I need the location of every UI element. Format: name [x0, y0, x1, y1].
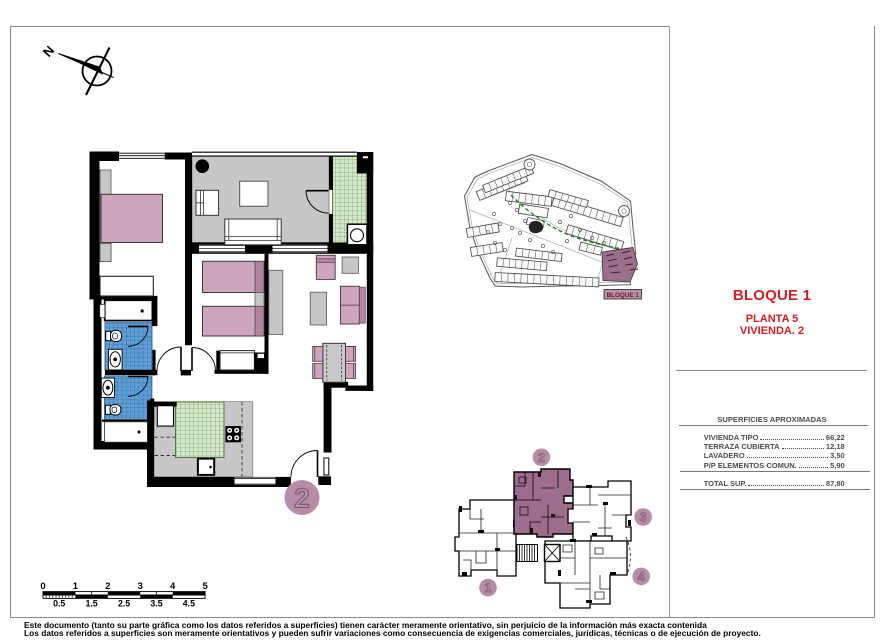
svg-text:BLOQUE 1: BLOQUE 1	[607, 292, 640, 299]
svg-text:1.5: 1.5	[85, 599, 97, 609]
svg-text:3: 3	[640, 510, 647, 525]
svg-text:0: 0	[40, 581, 45, 592]
svg-text:5: 5	[202, 581, 208, 592]
svg-text:0.5: 0.5	[53, 599, 65, 609]
svg-text:2.5: 2.5	[118, 599, 130, 609]
svg-text:N: N	[40, 43, 57, 60]
svg-text:3: 3	[138, 581, 143, 592]
svg-text:1: 1	[73, 581, 79, 592]
svg-text:2: 2	[105, 581, 110, 592]
svg-text:4: 4	[638, 569, 646, 584]
svg-text:2: 2	[538, 450, 545, 465]
svg-text:2: 2	[294, 483, 310, 514]
svg-text:3.5: 3.5	[150, 599, 162, 609]
svg-text:4.5: 4.5	[183, 599, 195, 609]
svg-text:1: 1	[484, 580, 491, 595]
svg-text:4: 4	[170, 581, 176, 592]
